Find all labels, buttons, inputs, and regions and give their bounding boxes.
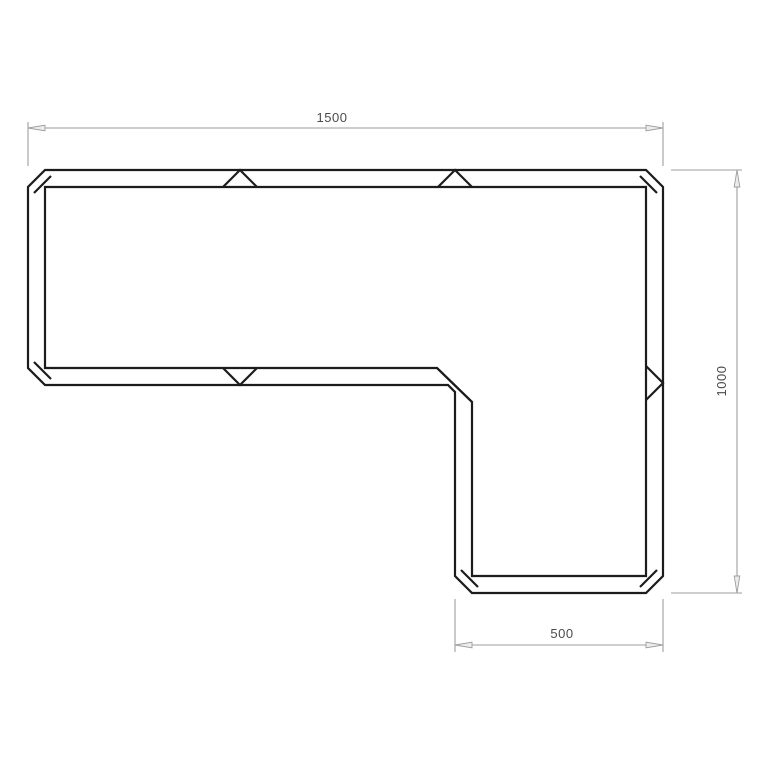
wall-seam-right xyxy=(646,366,663,400)
wall-seam-bottom xyxy=(223,368,257,385)
dim-bottom-label: 500 xyxy=(550,626,573,641)
dim-top-arrow-left xyxy=(28,125,45,131)
technical-drawing: 1500 1000 500 xyxy=(0,0,768,768)
dimension-top: 1500 xyxy=(28,110,663,166)
dim-right-arrow-bottom xyxy=(734,576,740,593)
planter-outer-edge xyxy=(28,170,663,593)
wall-seam-top-2 xyxy=(438,170,472,187)
planter-inner-edge xyxy=(45,187,646,576)
dim-bottom-arrow-left xyxy=(455,642,472,648)
dim-top-label: 1500 xyxy=(317,110,348,125)
planter-outline xyxy=(28,170,663,593)
dim-right-label: 1000 xyxy=(714,366,729,397)
drawing-canvas: 1500 1000 500 xyxy=(0,0,768,768)
dim-top-arrow-right xyxy=(646,125,663,131)
dimension-right: 1000 xyxy=(671,170,742,593)
dimension-bottom: 500 xyxy=(455,599,663,652)
dim-right-arrow-top xyxy=(734,170,740,187)
wall-seam-top-1 xyxy=(223,170,257,187)
dim-bottom-arrow-right xyxy=(646,642,663,648)
